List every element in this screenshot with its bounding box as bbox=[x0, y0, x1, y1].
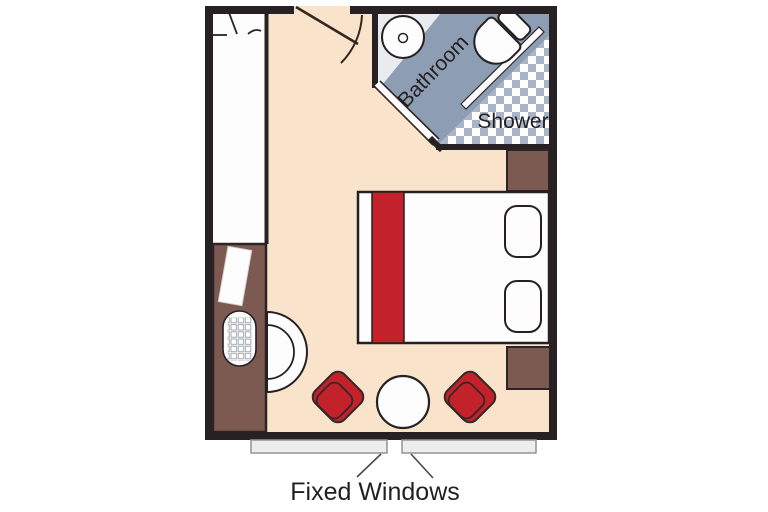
pointer-line bbox=[411, 454, 433, 478]
desk bbox=[213, 244, 266, 432]
double-bed bbox=[358, 192, 549, 343]
bathroom-wall bbox=[372, 14, 378, 88]
bed-runner bbox=[372, 192, 404, 343]
pillow bbox=[505, 281, 541, 332]
floor-plan: Bathroom Shower Fixed Windows bbox=[0, 0, 768, 512]
telephone-keypad-icon bbox=[223, 311, 256, 366]
shower-label: Shower bbox=[477, 110, 548, 133]
fixed-window-right bbox=[402, 440, 536, 453]
washbasin-icon bbox=[382, 16, 424, 58]
pillow bbox=[505, 206, 541, 257]
fixed-window-left bbox=[251, 440, 387, 453]
fixed-windows-label: Fixed Windows bbox=[290, 478, 460, 506]
round-table bbox=[377, 376, 429, 428]
pointer-line bbox=[357, 454, 381, 477]
nightstand-top bbox=[507, 150, 549, 191]
wardrobe bbox=[213, 10, 267, 244]
nightstand-bottom bbox=[507, 347, 551, 389]
